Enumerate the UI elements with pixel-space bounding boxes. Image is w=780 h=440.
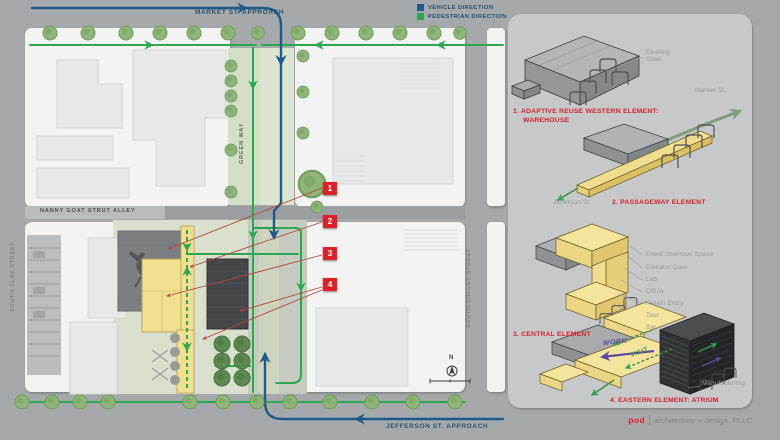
- legend-row-vehicle: VEHICLE DIRECTION: [417, 3, 507, 12]
- pedestrian-direction-label: PEDESTRIAN DIRECTION: [428, 14, 507, 20]
- market-st-approach-label: MARKET ST. APPROACH: [195, 9, 284, 16]
- central-annotation-event-overlook: Event Overlook Space: [646, 252, 714, 259]
- plan-marker-1: 1: [323, 182, 337, 195]
- parking-area: [27, 235, 61, 375]
- vehicle-direction-swatch: [417, 4, 424, 11]
- nanny-goat-alley-label: NANNY GOAT STRUT ALLEY: [40, 208, 135, 214]
- legend: VEHICLE DIRECTION PEDESTRIAN DIRECTION: [417, 3, 507, 21]
- firm-credit: pod architecture + design, PLLC: [560, 415, 752, 425]
- diagram-1-title: 1. ADAPTIVE REUSE WESTERN ELEMENT:: [513, 108, 659, 115]
- pedestrian-direction-swatch: [417, 13, 424, 20]
- central-annotation-office: Office: [646, 289, 664, 296]
- firm-brand: pod: [628, 415, 644, 425]
- manufacturing-label: Manufacturing: [702, 381, 745, 388]
- plan-marker-4: 4: [323, 278, 337, 291]
- jefferson-st-approach-label: JEFFERSON ST. APPROACH: [386, 423, 488, 430]
- diagram-2-title: 2. PASSAGEWAY ELEMENT: [612, 199, 706, 206]
- central-annotation-elevator-core: Elevator Core: [646, 265, 688, 272]
- greenway-strip: [228, 48, 294, 205]
- vehicle-direction-label: VEHICLE DIRECTION: [428, 5, 493, 11]
- plan-marker-2: 2: [323, 215, 337, 228]
- central-annotation-retail-entry: Retail/ Entry: [646, 301, 684, 308]
- central-annotation-lab: Lab: [646, 277, 657, 284]
- diagram-1-subtitle: WAREHOUSE: [523, 117, 569, 124]
- central-element-building: [142, 259, 184, 332]
- north-label: N: [449, 355, 453, 362]
- central-annotation-tour: Tour: [646, 313, 659, 320]
- firm-name: architecture + design, PLLC: [654, 416, 752, 425]
- south-clay-street-label: SOUTH CLAY STREET: [10, 232, 16, 312]
- plan-graphics: [0, 0, 780, 440]
- market-st-label: Market St.: [695, 88, 726, 95]
- existing-steel-label: Existing Steel: [646, 50, 680, 64]
- diagram-3-title: 3. CENTRAL ELEMENT: [513, 331, 591, 338]
- jefferson-st-label: Jefferson St.: [553, 200, 592, 207]
- plan-marker-3: 3: [323, 247, 337, 260]
- south-shelby-street-label: SOUTH SHELBY STREET: [466, 238, 472, 328]
- legend-row-pedestrian: PEDESTRIAN DIRECTION: [417, 12, 507, 21]
- credit-divider: [649, 415, 650, 425]
- diagram-4-title: 4. EASTERN ELEMENT: ATRIUM: [610, 397, 719, 404]
- site-plan-presentation: MARKET ST. APPROACH JEFFERSON ST. APPROA…: [0, 0, 780, 440]
- green-way-label: GREEN WAY: [239, 100, 245, 164]
- central-annotation-bar: Bar: [646, 325, 657, 332]
- eastern-element-building: [207, 259, 248, 329]
